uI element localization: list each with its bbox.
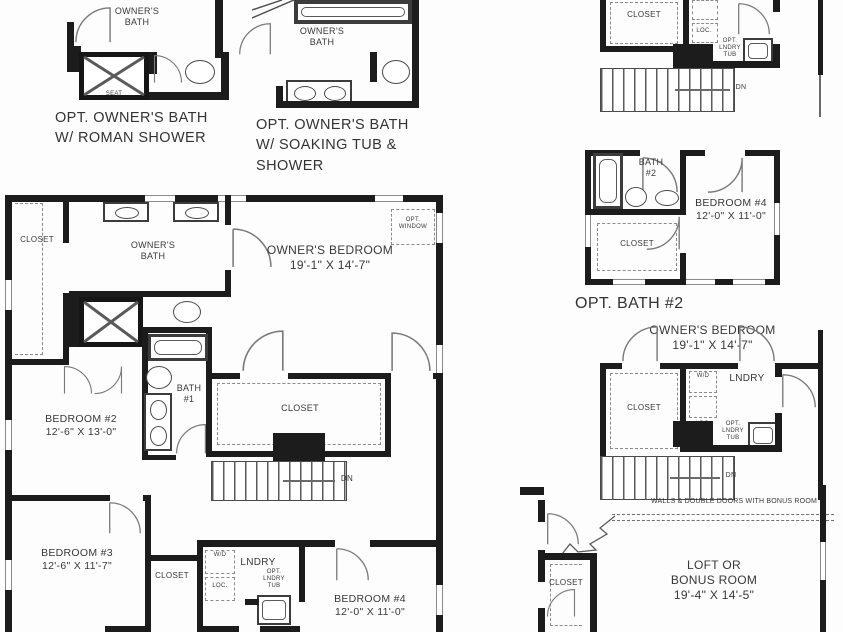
- door-arc: [706, 156, 744, 194]
- wall: [305, 540, 335, 547]
- window-marker: [436, 345, 443, 375]
- closet-label: CLOSET: [13, 235, 61, 245]
- lndry-label: LNDRY: [721, 373, 773, 386]
- toilet: [625, 187, 647, 207]
- wall: [773, 0, 780, 12]
- door-arc: [63, 365, 93, 395]
- door-arc: [241, 329, 285, 373]
- door-arc: [74, 6, 112, 44]
- window-marker: [5, 560, 12, 590]
- wall: [433, 373, 443, 379]
- toilet: [185, 60, 215, 84]
- detail-owners-laundry: OWNER'S BEDROOM 19'-1" X 14'-7" CLOSET W…: [585, 315, 840, 500]
- wall: [260, 626, 300, 632]
- closet-label: CLOSET: [605, 239, 669, 249]
- shower: [79, 297, 143, 347]
- wall: [600, 363, 606, 460]
- sink: [294, 86, 316, 101]
- door-arc: [108, 501, 142, 535]
- wall: [215, 0, 223, 58]
- door-arc: [153, 54, 183, 84]
- door-arc: [781, 373, 817, 409]
- opt-lndry-tub-label: OPT. LNDRY TUB: [716, 421, 750, 443]
- closet-label: CLOSET: [613, 403, 675, 413]
- wd-label: W/D: [207, 552, 233, 559]
- annotation-dash-line: [612, 520, 834, 521]
- wd-label: W/D: [690, 373, 716, 380]
- wall: [680, 445, 782, 452]
- caption-opt-bath2: OPT. BATH #2: [575, 293, 745, 315]
- door-arc: [621, 325, 659, 363]
- lndry-label: LNDRY: [231, 557, 285, 570]
- wall: [600, 0, 606, 52]
- tub-basin: [301, 7, 405, 17]
- wall: [276, 101, 419, 108]
- window-marker: [733, 279, 765, 285]
- bedroom4-label: BEDROOM #4 12'-0" X 11'-0": [313, 593, 427, 619]
- loft-label: LOFT OR BONUS ROOM 19'-4" X 14'-5": [648, 558, 780, 603]
- closet-shelf-dashes: [15, 203, 43, 355]
- door-arc: [546, 512, 580, 546]
- wall: [245, 599, 259, 605]
- wall: [538, 608, 545, 632]
- wall: [299, 540, 305, 602]
- wall: [520, 487, 544, 495]
- bedroom3-label: BEDROOM #3 12'-6" X 11'-7": [21, 547, 133, 573]
- floor-plan-sheet: OWNER'S BATH SEAT OPT. OWNER'S BATH W/ R…: [0, 0, 843, 632]
- wall: [680, 363, 686, 425]
- wall: [67, 22, 74, 48]
- laundry-tub: [257, 595, 291, 625]
- bedroom2-label: BEDROOM #2 12'-6" X 13'-0": [25, 413, 137, 439]
- door-arc: [238, 22, 272, 56]
- bath1-label: BATH #1: [168, 383, 210, 406]
- window-marker: [436, 213, 443, 243]
- bath2-label: BATH #2: [627, 157, 675, 180]
- annotation-dash-line: [612, 514, 834, 515]
- wall: [673, 44, 713, 68]
- wall: [819, 75, 821, 117]
- wall: [5, 359, 69, 365]
- dn-label: DN: [337, 474, 357, 484]
- stair-arrow: [670, 477, 720, 479]
- owners-bedroom-label: OWNER'S BEDROOM 19'-1" X 14'-7": [245, 243, 415, 273]
- wall: [149, 92, 229, 100]
- door-arc: [546, 588, 576, 618]
- wall: [105, 626, 150, 632]
- closet-label: CLOSET: [613, 10, 675, 20]
- seat-label: SEAT: [98, 91, 130, 98]
- wall: [436, 195, 443, 632]
- washer-dryer-box: [692, 0, 718, 20]
- wall: [385, 373, 391, 457]
- shower-x-mark: [84, 57, 144, 95]
- sink: [150, 400, 167, 420]
- wall: [288, 373, 390, 379]
- window-marker: [145, 195, 175, 202]
- wall: [145, 501, 151, 632]
- wall: [683, 0, 689, 46]
- soaking-tub: [294, 0, 412, 24]
- door-arc: [738, 325, 776, 363]
- window-marker: [218, 195, 246, 202]
- wall: [370, 52, 377, 82]
- opt-window-label: OPT. WINDOW: [393, 217, 433, 231]
- caption-roman-shower: OPT. OWNER'S BATH W/ ROMAN SHOWER: [55, 108, 240, 149]
- door-arc: [390, 331, 432, 373]
- wall: [590, 553, 597, 632]
- door-arc: [737, 2, 771, 36]
- bathtub: [148, 334, 208, 361]
- wall: [225, 270, 231, 297]
- closet-label: CLOSET: [147, 571, 197, 581]
- toilet: [382, 60, 410, 84]
- window-marker: [375, 195, 403, 202]
- wall: [273, 433, 325, 463]
- opt-lndry-tub-label: OPT. LNDRY TUB: [255, 569, 293, 591]
- wall: [5, 495, 110, 501]
- vanity: [103, 202, 149, 222]
- detail-opt-bath2: BATH #2 CLOSET BEDROOM #4 12'-0" X 11'-0…: [585, 145, 795, 313]
- wall: [818, 0, 823, 75]
- closet-shelf-dashes: [610, 2, 678, 44]
- wall: [412, 0, 419, 55]
- wall: [63, 195, 69, 243]
- wall: [206, 373, 212, 457]
- washer-dryer-box: [689, 396, 717, 418]
- window-marker: [613, 279, 645, 285]
- window-marker: [585, 215, 591, 247]
- detail-laundry-top: CLOSET LOC. OPT. LNDRY TUB DN: [585, 0, 840, 120]
- opt-lndry-tub-label: OPT. LNDRY TUB: [713, 38, 747, 60]
- main-floor-plan: CLOSET OWNER'S BATH OWNER'S BEDROOM 19'-…: [5, 195, 443, 632]
- window-marker: [436, 585, 443, 615]
- wall: [199, 626, 239, 632]
- wall: [680, 253, 686, 285]
- wall: [145, 555, 203, 561]
- room-label-owners-bath: OWNER'S BATH: [280, 26, 364, 49]
- toilet: [173, 301, 201, 323]
- detail-soaking-tub: OWNER'S BATH OPT. OWNER'S BATH W/ SOAKIN…: [252, 0, 427, 180]
- door-arc: [335, 547, 370, 582]
- dn-label: DN: [731, 84, 751, 93]
- closet-label: CLOSET: [544, 578, 588, 588]
- sink: [150, 426, 167, 446]
- window-marker: [5, 420, 12, 450]
- wall: [142, 327, 212, 333]
- wall: [412, 55, 419, 107]
- sink: [324, 86, 346, 101]
- wall: [673, 421, 713, 447]
- bathtub: [593, 153, 623, 209]
- wall: [197, 547, 203, 632]
- stair-arrow: [675, 89, 730, 91]
- wall: [225, 195, 231, 225]
- roman-shower: SEAT: [79, 52, 149, 100]
- owners-bath-label: OWNER'S BATH: [120, 240, 186, 263]
- wall: [370, 540, 443, 547]
- detail-loft: WALLS & DOUBLE DOORS WITH BONUS ROOM CLO…: [500, 480, 843, 632]
- corner-shower: [252, 0, 294, 18]
- caption-soaking-tub: OPT. OWNER'S BATH W/ SOAKING TUB & SHOWE…: [256, 115, 436, 176]
- wall: [221, 52, 229, 100]
- bonus-room-annotation: WALLS & DOUBLE DOORS WITH BONUS ROOM: [628, 498, 840, 507]
- wall: [713, 61, 780, 68]
- vanity: [173, 202, 219, 222]
- door-arc: [93, 365, 123, 395]
- detail-roman-shower: OWNER'S BATH SEAT OPT. OWNER'S BATH W/ R…: [55, 0, 240, 150]
- wall: [197, 540, 305, 547]
- window-marker: [5, 280, 12, 310]
- loc-label: LOC.: [205, 583, 235, 590]
- wall: [777, 363, 820, 369]
- window-marker: [820, 542, 826, 580]
- wall: [818, 330, 823, 500]
- door-arc: [175, 423, 207, 455]
- wall: [538, 500, 545, 522]
- loc-label: LOC.: [689, 28, 719, 35]
- bedroom4-label: BEDROOM #4 12'-0" X 11'-0": [685, 197, 777, 223]
- window-marker: [685, 279, 715, 285]
- wall: [660, 363, 738, 369]
- stair-arrow: [283, 480, 335, 482]
- walk-in-closet-label: CLOSET: [260, 403, 340, 414]
- wall: [142, 455, 176, 460]
- sink: [655, 190, 679, 206]
